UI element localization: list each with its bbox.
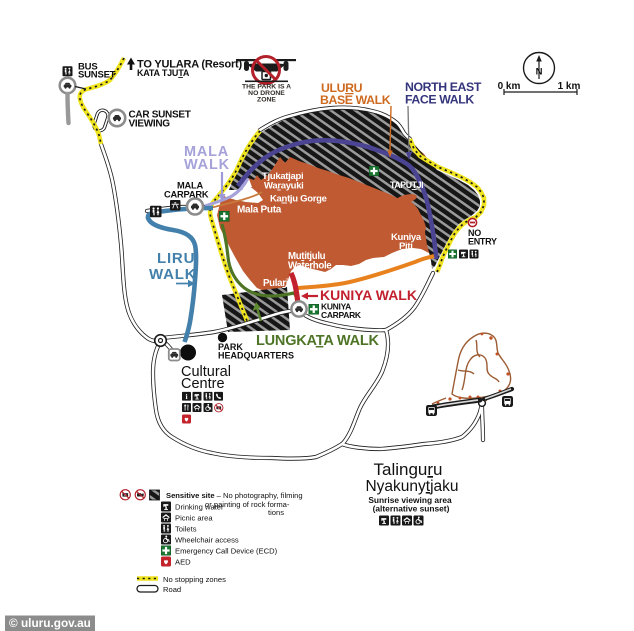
svg-text:Drinking water: Drinking water <box>175 503 224 512</box>
svg-text:Nyakunytjaku: Nyakunytjaku <box>365 478 458 495</box>
svg-text:Pulari: Pulari <box>263 278 288 289</box>
svg-text:ZONE: ZONE <box>257 97 276 104</box>
svg-text:WALK: WALK <box>149 266 196 283</box>
svg-text:0 km: 0 km <box>498 81 521 92</box>
svg-text:Road: Road <box>163 585 181 594</box>
svg-text:SUNSET: SUNSET <box>78 70 116 81</box>
svg-text:(alternative sunset): (alternative sunset) <box>373 504 450 514</box>
svg-text:FACE WALK: FACE WALK <box>405 93 474 107</box>
svg-text:Warayuki: Warayuki <box>264 181 304 192</box>
svg-text:Mala Puta: Mala Puta <box>237 205 282 216</box>
svg-text:Wheelchair access: Wheelchair access <box>175 536 239 545</box>
svg-text:VIEWING: VIEWING <box>129 119 171 130</box>
svg-text:Toilets: Toilets <box>175 525 197 534</box>
svg-text:Picnic area: Picnic area <box>175 514 213 523</box>
svg-text:© uluru.gov.au: © uluru.gov.au <box>9 616 91 630</box>
svg-text:Sensitive site – No photograph: Sensitive site – No photography, filming <box>166 491 303 500</box>
svg-text:BASE WALK: BASE WALK <box>320 93 391 107</box>
svg-text:Waterhole: Waterhole <box>288 261 332 272</box>
svg-text:N: N <box>536 67 543 78</box>
svg-text:AED: AED <box>175 558 191 567</box>
svg-text:HEADQUARTERS: HEADQUARTERS <box>218 351 294 361</box>
svg-text:TAPUTJI: TAPUTJI <box>390 180 423 190</box>
svg-text:Talinguru: Talinguru <box>373 460 442 479</box>
svg-text:LUNGKATA WALK: LUNGKATA WALK <box>256 333 380 349</box>
svg-text:KATA TJUTA: KATA TJUTA <box>137 68 190 78</box>
svg-text:Centre: Centre <box>181 376 225 392</box>
svg-text:Piti: Piti <box>399 241 413 252</box>
svg-text:CARPARK: CARPARK <box>164 190 209 200</box>
svg-text:tions: tions <box>268 508 284 517</box>
svg-text:LIRU: LIRU <box>157 250 195 267</box>
svg-text:WALK: WALK <box>184 157 230 173</box>
svg-text:No stopping zones: No stopping zones <box>163 575 226 584</box>
svg-text:Emergency Call Device (ECD): Emergency Call Device (ECD) <box>175 547 278 556</box>
svg-text:Kantju Gorge: Kantju Gorge <box>270 194 327 205</box>
svg-text:CARPARK: CARPARK <box>321 310 362 320</box>
svg-text:ENTRY: ENTRY <box>468 237 497 247</box>
